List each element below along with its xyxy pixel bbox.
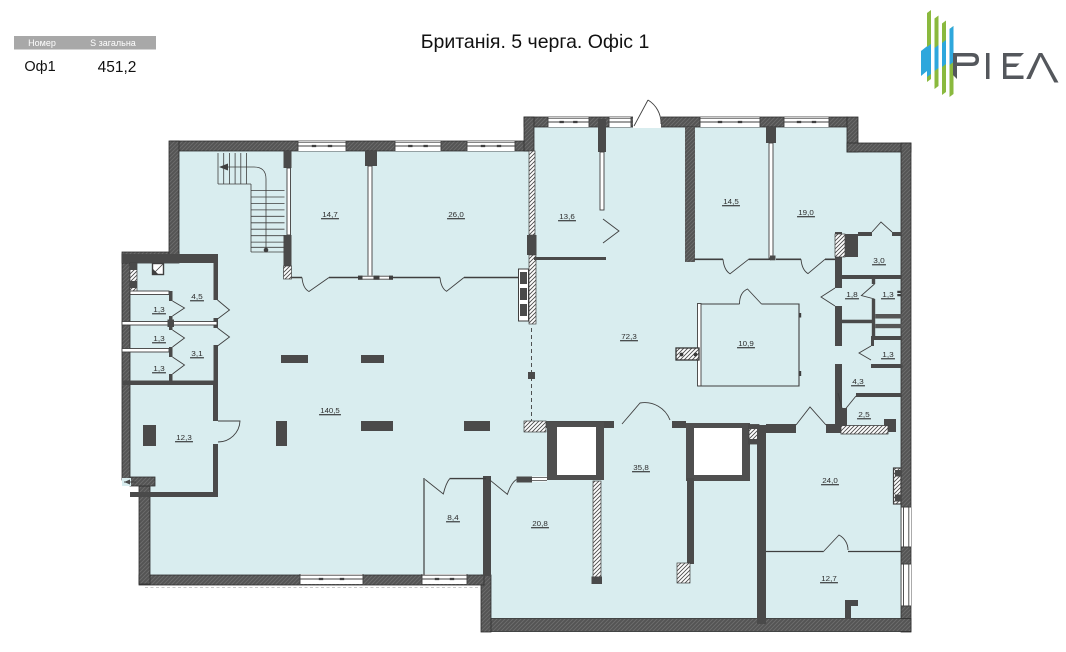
svg-text:26,0: 26,0 [448, 212, 464, 219]
svg-text:451,2: 451,2 [98, 59, 137, 76]
svg-text:1,3: 1,3 [882, 292, 894, 299]
svg-text:1,3: 1,3 [153, 307, 165, 314]
svg-text:12,3: 12,3 [176, 435, 192, 442]
svg-text:12,7: 12,7 [821, 576, 837, 583]
svg-text:19,0: 19,0 [798, 210, 814, 217]
svg-text:140,5: 140,5 [320, 408, 340, 415]
svg-text:1,3: 1,3 [153, 336, 165, 343]
svg-text:Номер: Номер [28, 38, 56, 48]
svg-text:3,0: 3,0 [873, 258, 885, 265]
svg-text:S загальна: S загальна [90, 38, 136, 48]
svg-text:4,5: 4,5 [191, 294, 203, 301]
svg-text:1,3: 1,3 [153, 366, 165, 373]
svg-text:1,3: 1,3 [882, 352, 894, 359]
svg-text:20,8: 20,8 [532, 521, 548, 528]
svg-text:4,3: 4,3 [852, 379, 864, 386]
svg-text:13,6: 13,6 [559, 214, 575, 221]
svg-text:14,5: 14,5 [723, 199, 739, 206]
svg-text:72,3: 72,3 [621, 334, 637, 341]
svg-text:8,4: 8,4 [447, 515, 459, 522]
svg-text:3,1: 3,1 [191, 351, 203, 358]
svg-text:14,7: 14,7 [322, 212, 338, 219]
svg-text:2,5: 2,5 [858, 412, 870, 419]
svg-text:24,0: 24,0 [822, 478, 838, 485]
svg-text:35,8: 35,8 [633, 465, 649, 472]
svg-text:1,8: 1,8 [846, 292, 858, 299]
svg-text:Британія. 5 черга. Офіс 1: Британія. 5 черга. Офіс 1 [421, 31, 650, 53]
svg-text:Оф1: Оф1 [24, 59, 55, 75]
svg-text:10,9: 10,9 [738, 341, 754, 348]
